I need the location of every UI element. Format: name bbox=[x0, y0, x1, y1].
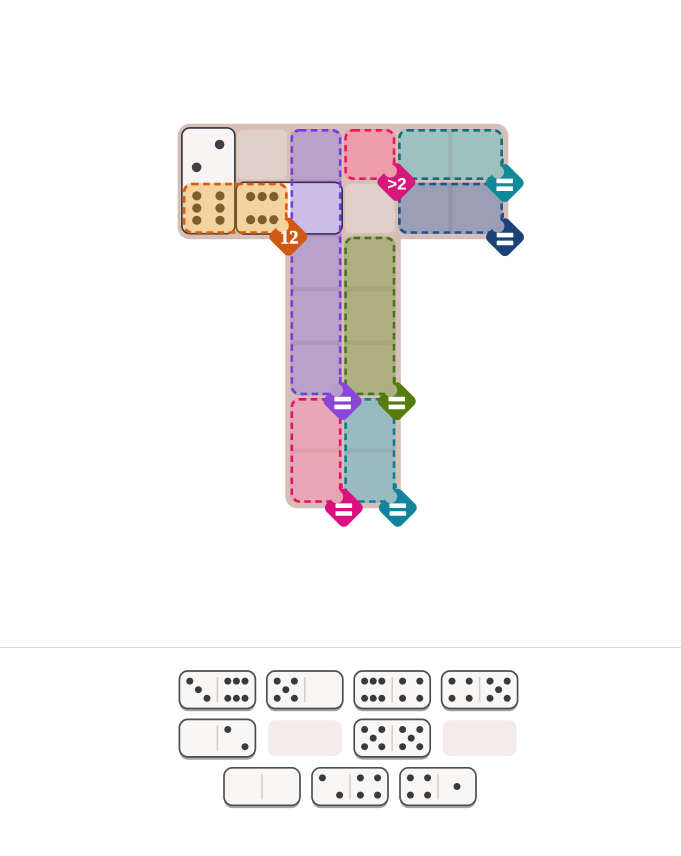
svg-text:12: 12 bbox=[280, 228, 299, 248]
svg-text:>2: >2 bbox=[387, 174, 406, 193]
